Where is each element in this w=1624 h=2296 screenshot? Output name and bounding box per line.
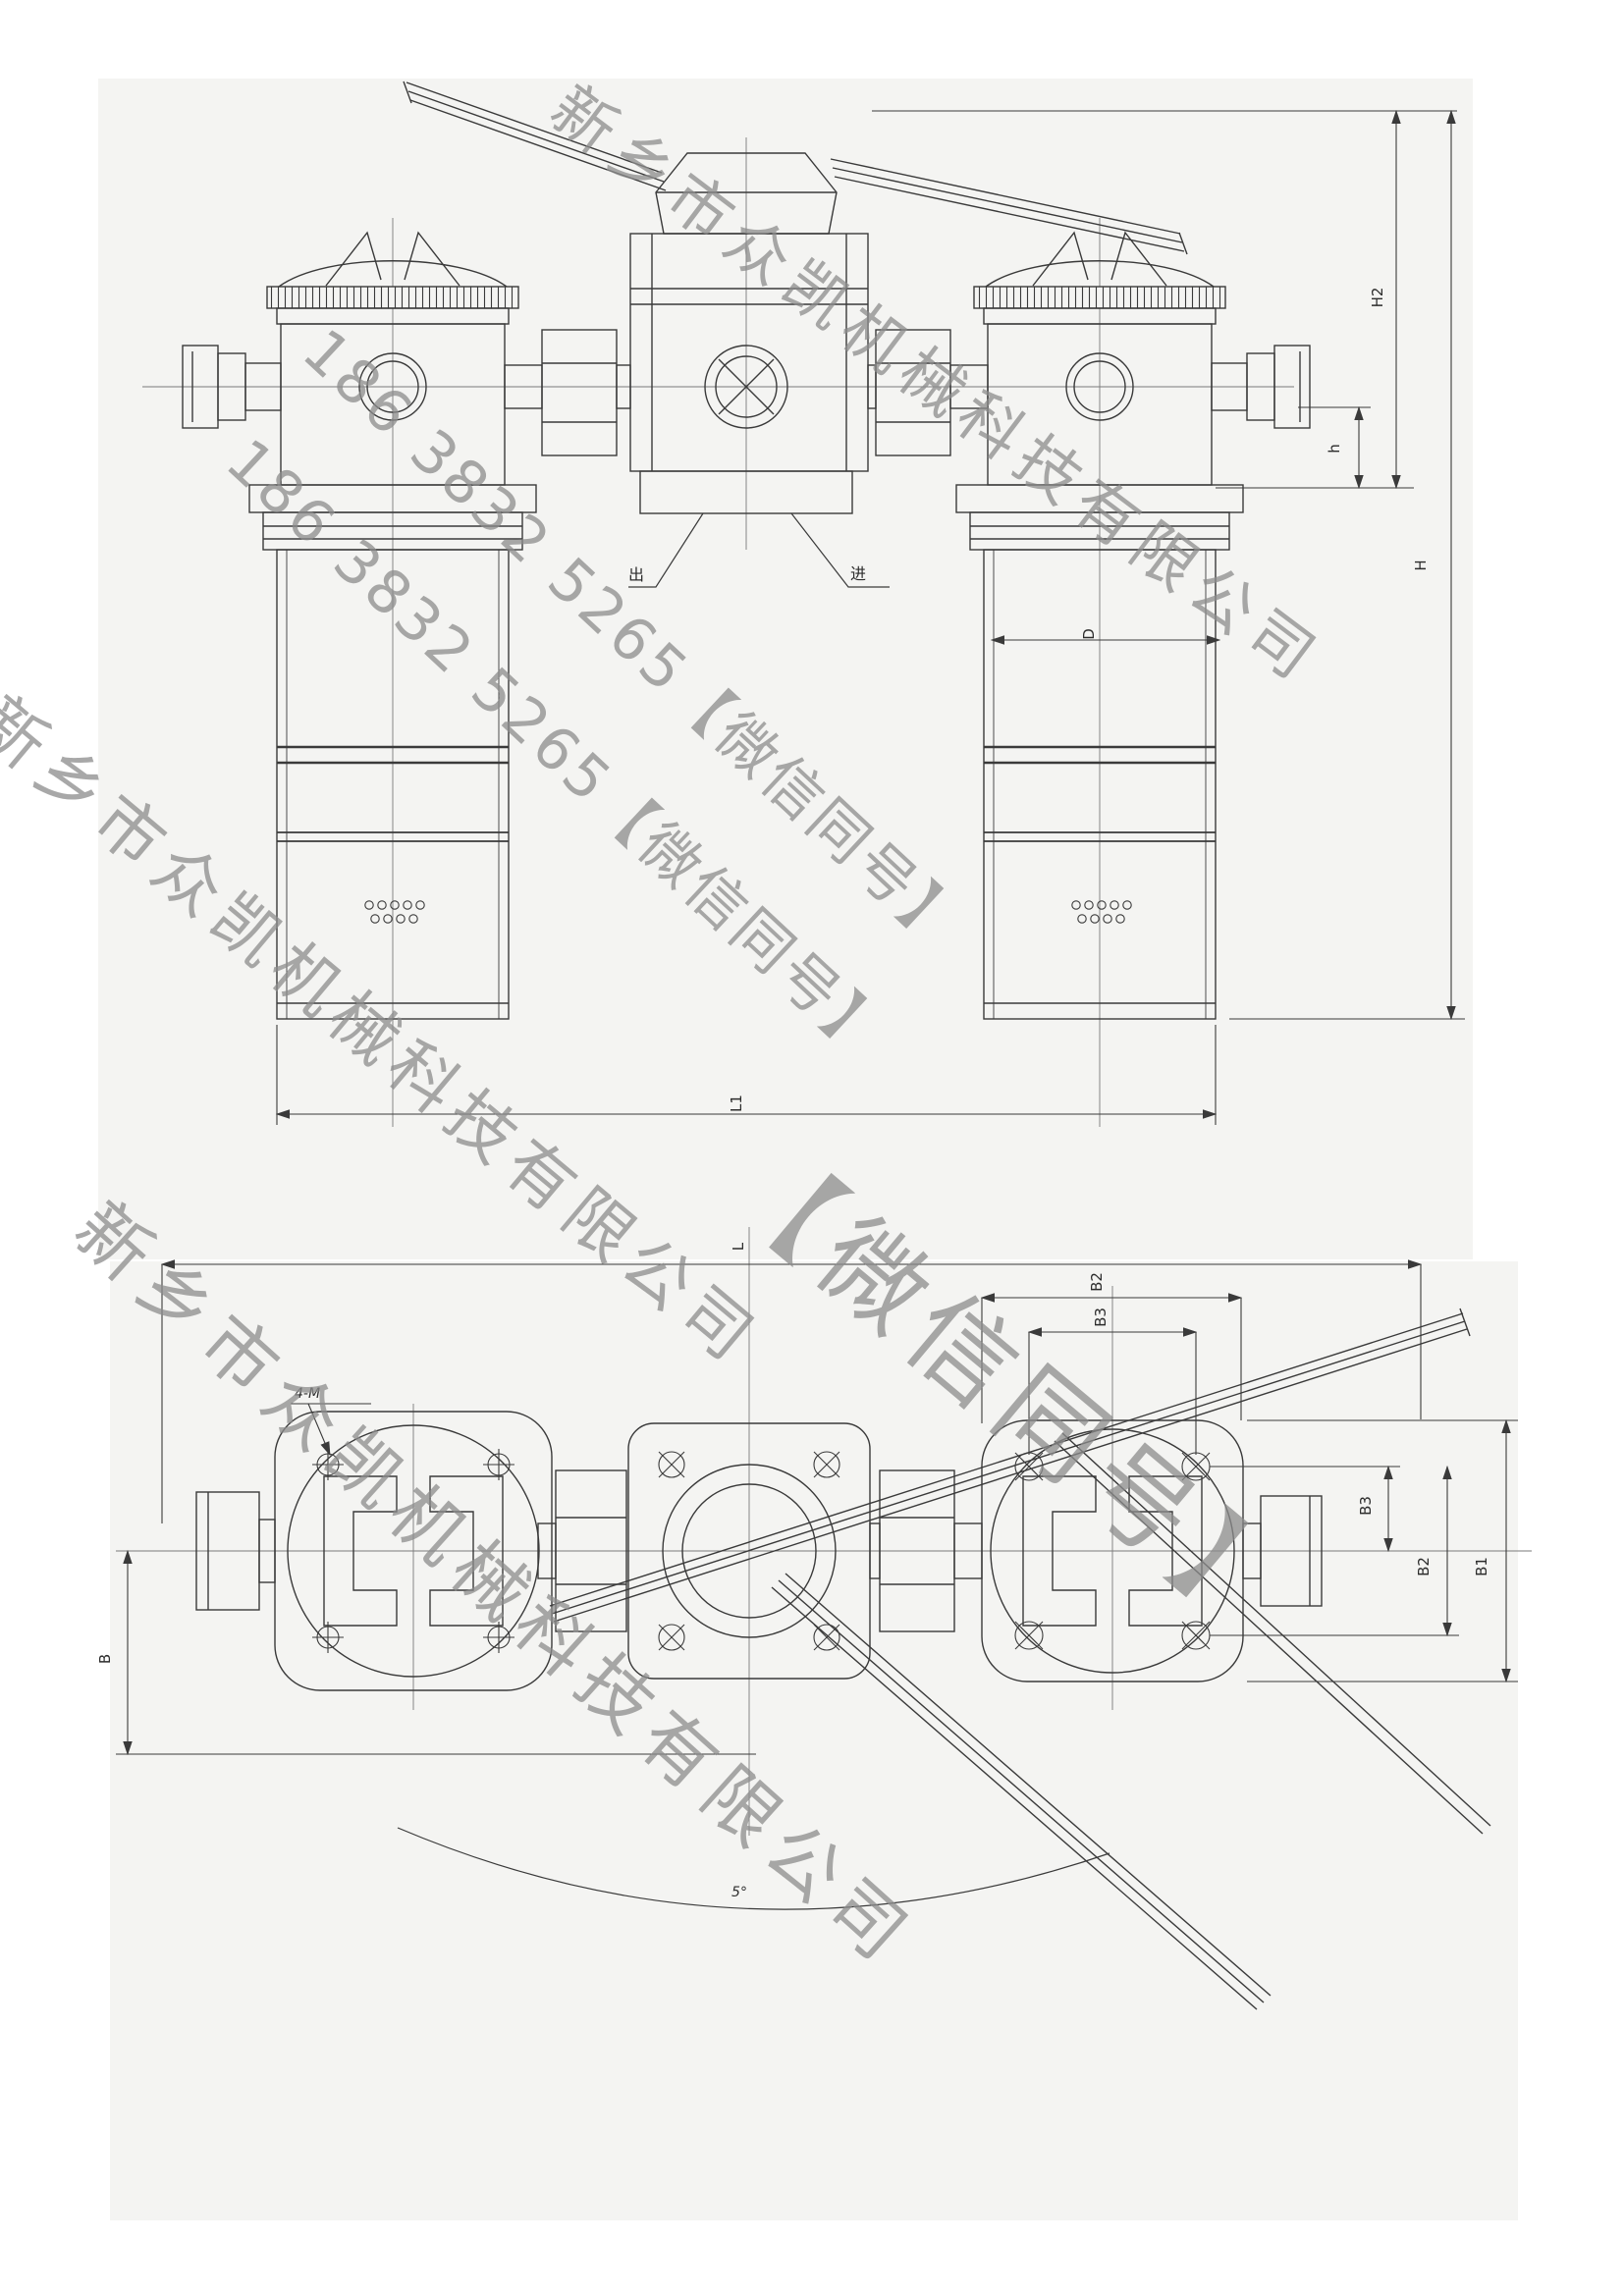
handle-rod-elevation xyxy=(404,81,1187,254)
front-view-drawing xyxy=(142,81,1465,1127)
dim-label-h-total: H xyxy=(1412,560,1430,570)
plan-dimensions xyxy=(116,1264,1518,1754)
page-root: H2 h H D L1 出 进 L B B3 B2 B1 B2 B3 4-M 5… xyxy=(0,0,1624,2296)
plan-centerlines xyxy=(116,1227,1532,1836)
mount-holes-label: 4-M xyxy=(295,1386,320,1402)
port-label-out: 出 xyxy=(628,565,644,584)
dim-label-l: L xyxy=(730,1242,747,1251)
dim-label-d: D xyxy=(1080,628,1098,640)
dim-label-b2: B2 xyxy=(1415,1557,1433,1576)
duplex-filter-drawing: H2 h H D L1 出 进 L B B3 B2 B1 B2 B3 4-M 5… xyxy=(0,0,1624,2296)
left-filter-elevation xyxy=(183,233,536,1019)
front-dimensions xyxy=(277,111,1465,1125)
dim-label-b2-top: B2 xyxy=(1088,1272,1106,1292)
port-label-in: 进 xyxy=(850,564,866,583)
swing-angle-label: 5° xyxy=(731,1885,747,1900)
dim-label-b3-top: B3 xyxy=(1092,1308,1110,1327)
right-filter-elevation xyxy=(956,233,1310,1019)
plan-view-drawing xyxy=(116,1227,1532,2009)
dim-label-h-small: h xyxy=(1326,444,1343,454)
dim-label-b3: B3 xyxy=(1357,1496,1375,1516)
valve-body-elevation xyxy=(630,153,868,513)
dim-label-b1: B1 xyxy=(1473,1557,1490,1576)
dim-label-l1: L1 xyxy=(728,1095,745,1112)
handle-swing-arc xyxy=(398,1828,1110,1909)
dim-label-b: B xyxy=(96,1654,114,1664)
front-centerlines xyxy=(142,137,1294,1127)
dim-label-h2: H2 xyxy=(1369,288,1386,308)
